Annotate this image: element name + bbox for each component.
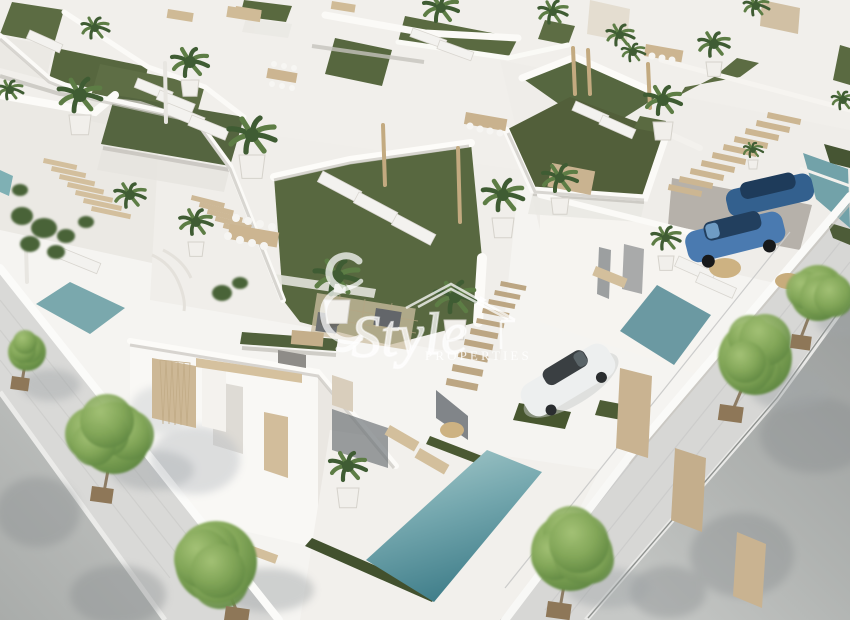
svg-text:PROPERTIES: PROPERTIES [425,348,532,363]
